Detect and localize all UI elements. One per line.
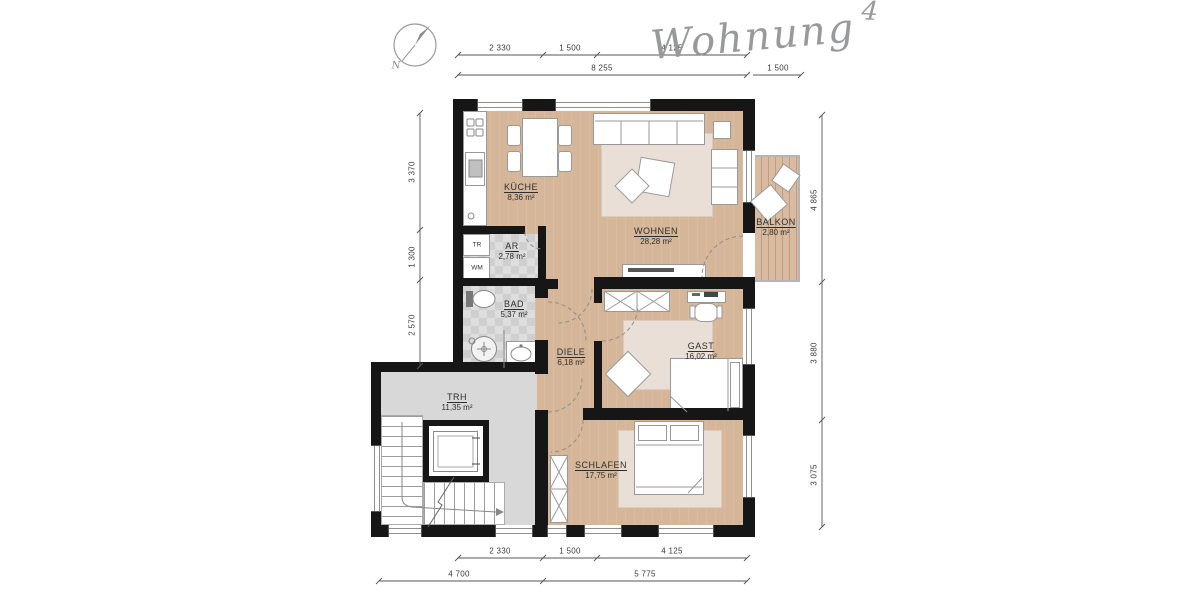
dim-label: 3 075 <box>810 464 819 486</box>
window <box>477 99 523 111</box>
room-area: 8,36 m² <box>504 193 538 202</box>
stairs-left-flight <box>381 415 423 525</box>
wardrobe-schlafen <box>550 455 568 523</box>
rug-wohnen <box>601 133 713 217</box>
dim-label: 3 370 <box>408 161 417 183</box>
room-area: 6,18 m² <box>557 358 586 367</box>
dim-label: 4 865 <box>810 189 819 211</box>
dim-label: 3 880 <box>810 342 819 364</box>
bed-pillow <box>670 425 699 441</box>
room-name: BALKON <box>756 217 796 227</box>
bed-pillow <box>638 425 667 441</box>
dining-chair <box>507 125 521 146</box>
room-label-gast: GAST 16,02 m² <box>685 341 717 361</box>
room-label-wohnen: WOHNEN 28,28 m² <box>634 226 678 246</box>
wall-gast-left <box>594 277 602 303</box>
wall-diele-left <box>535 410 548 526</box>
dim-label: 1 500 <box>767 64 789 73</box>
window <box>743 150 755 203</box>
dim-label: 2 330 <box>489 547 511 556</box>
elevator-car <box>433 431 478 472</box>
dim-label: 1 500 <box>559 44 581 53</box>
dining-table <box>522 118 558 177</box>
room-name: GAST <box>685 341 717 351</box>
room-area: 16,02 m² <box>685 352 717 361</box>
room-name: WOHNEN <box>634 226 678 236</box>
room-name: DIELE <box>557 347 586 357</box>
window <box>388 525 422 537</box>
room-name: BAD <box>500 299 527 309</box>
window <box>547 525 567 537</box>
title-word: Wohnung <box>649 5 857 69</box>
dining-chair <box>507 151 521 172</box>
window <box>371 445 381 512</box>
room-area: 17,75 m² <box>575 471 627 480</box>
wall-kueche-ar <box>455 226 525 234</box>
dim-label: 2 570 <box>408 314 417 336</box>
wardrobe-gast <box>604 291 670 312</box>
balcony-door-opening <box>743 233 755 277</box>
title-number: 4 <box>861 0 881 27</box>
armchair <box>711 149 738 205</box>
room-label-ar: AR 2,78 m² <box>498 241 525 261</box>
bed-single-pillow <box>730 362 740 408</box>
wall-left <box>453 99 463 370</box>
room-area: 2,78 m² <box>498 252 525 261</box>
compass-north-label: N <box>392 61 401 72</box>
wall-ar-bad <box>455 278 546 286</box>
dryer-label: TR <box>473 242 482 249</box>
window <box>743 308 755 365</box>
wall-trh-top <box>371 362 548 372</box>
sofa <box>593 113 705 145</box>
dim-label: 4 700 <box>448 570 470 579</box>
room-label-kueche: KÜCHE 8,36 m² <box>504 182 538 202</box>
dim-label: 2 330 <box>489 44 511 53</box>
dim-label: 1 500 <box>559 547 581 556</box>
room-label-diele: DIELE 6,18 m² <box>557 347 586 367</box>
window <box>658 525 714 537</box>
room-label-balkon: BALKON 2,80 m² <box>756 217 796 237</box>
room-area: 2,80 m² <box>756 228 796 237</box>
dim-label: 4 125 <box>661 547 683 556</box>
dining-chair <box>558 151 572 172</box>
window <box>495 525 533 537</box>
desk <box>687 291 726 303</box>
dim-label: 8 255 <box>591 64 613 73</box>
room-area: 5,37 m² <box>500 310 527 319</box>
dim-label: 1 300 <box>408 246 417 268</box>
room-label-trh: TRH 11,35 m² <box>442 392 473 412</box>
room-name: TRH <box>442 392 473 402</box>
washer-label: WM <box>471 265 483 272</box>
side-table <box>713 121 731 139</box>
desk-chair <box>694 303 718 322</box>
wall-ar-right <box>538 226 546 286</box>
wall-wohnen-gast <box>594 277 755 289</box>
stairs-bottom-flight <box>423 482 505 525</box>
room-name: AR <box>498 241 525 251</box>
room-name: KÜCHE <box>504 182 538 192</box>
room-area: 28,28 m² <box>634 237 678 246</box>
wall-gast-schlafen <box>583 408 755 420</box>
sideboard <box>622 264 706 278</box>
window <box>555 99 651 111</box>
room-label-schlafen: SCHLAFEN 17,75 m² <box>575 460 627 480</box>
wall-diele-stub <box>546 279 558 289</box>
dim-label: 5 775 <box>634 570 656 579</box>
kitchen-sink <box>465 152 485 186</box>
room-area: 11,35 m² <box>442 403 473 412</box>
room-name: SCHLAFEN <box>575 460 627 470</box>
page-title: Wohnung4 <box>648 0 883 69</box>
window <box>743 435 755 498</box>
dining-chair <box>558 125 572 146</box>
floorplan-canvas: KÜCHE 8,36 m² WOHNEN 28,28 m² BALKON 2,8… <box>0 0 1200 600</box>
window <box>584 525 622 537</box>
room-label-bad: BAD 5,37 m² <box>500 299 527 319</box>
